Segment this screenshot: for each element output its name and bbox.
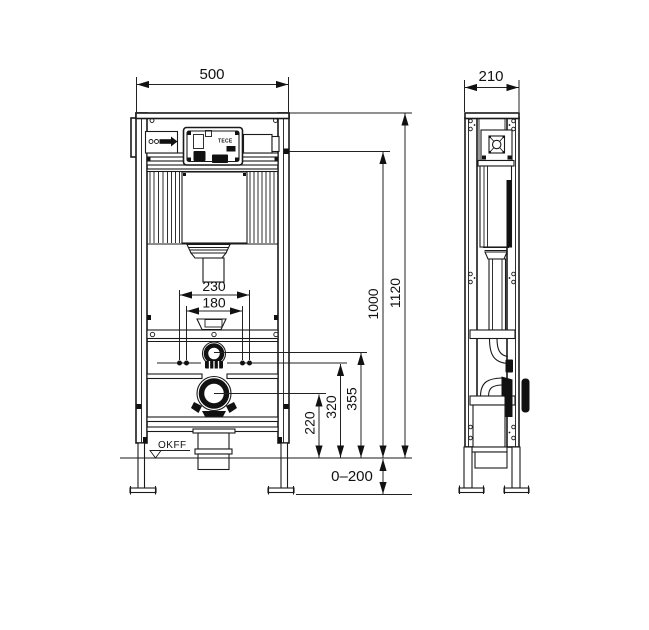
drain-pipe (193, 429, 235, 470)
mounting-stud (247, 361, 252, 366)
side-foot-plate-wall (504, 488, 529, 493)
dim-label-320: 320 (323, 395, 339, 419)
dim-depth-210: 210 (465, 68, 520, 112)
connector-unit (146, 132, 178, 154)
dim-label-500: 500 (199, 66, 224, 83)
side-flush-pipe (489, 259, 506, 330)
access-panel (182, 172, 247, 243)
cistern-ribs-left (150, 172, 180, 243)
wc-frame-technical-drawing: TECE (0, 0, 649, 630)
floor-reference: OKFF (120, 440, 412, 458)
mounting-stud (240, 361, 245, 366)
dim-label-230: 230 (202, 278, 226, 294)
side-view (459, 113, 530, 494)
dim-foot-range: 0–200 (296, 459, 412, 495)
flush-valve-shadow (507, 180, 512, 247)
frame-leg-right (268, 443, 294, 495)
technical-drawing-page: TECE (0, 0, 649, 630)
top-plate (136, 113, 289, 119)
dim-width-500: 500 (137, 66, 289, 112)
dim-height-220: 220 (302, 395, 319, 458)
dim-height-1000: 1000 (365, 152, 383, 458)
mounting-stud (177, 361, 182, 366)
dim-height-355: 355 (344, 353, 361, 458)
side-flush-unit (478, 130, 514, 166)
dim-label-180: 180 (202, 295, 226, 311)
drain-assembly (191, 377, 237, 419)
side-drain-pipe (472, 405, 507, 468)
side-foot-plate-front (459, 488, 484, 493)
wall-bracket (522, 379, 530, 413)
dim-label-210: 210 (478, 68, 503, 85)
tece-inspection-box: TECE (184, 128, 243, 166)
cistern-ribs-right (250, 172, 274, 243)
side-top-plate (465, 113, 519, 119)
side-leg-wall (504, 447, 529, 494)
side-middle-rail (470, 330, 515, 339)
brand-label: TECE (218, 139, 233, 145)
foot-plate-right (268, 488, 294, 493)
okff-level-marker-icon (150, 451, 161, 459)
middle-cross-rail (147, 330, 278, 342)
cistern-outlet-funnel (187, 245, 230, 283)
mounting-stud (184, 361, 189, 366)
okff-label: OKFF (158, 440, 187, 451)
flow-arrow-icon (160, 139, 172, 144)
foot-plate-left (130, 488, 156, 493)
dim-label-1120: 1120 (387, 278, 403, 308)
fill-valve-housing (244, 135, 280, 154)
dim-label-1000: 1000 (365, 288, 381, 319)
cistern-lid-joint (478, 161, 514, 167)
dim-height-320: 320 (323, 364, 340, 458)
dim-height-1120: 1120 (387, 114, 405, 458)
mounting-studs (157, 361, 347, 366)
cistern (147, 169, 278, 282)
dim-label-355: 355 (344, 387, 360, 411)
flush-bend-housing (203, 342, 226, 369)
dim-label-0-200: 0–200 (331, 468, 373, 485)
front-view: TECE (130, 113, 347, 495)
dim-label-220: 220 (302, 411, 318, 435)
flush-pipe-entry (197, 319, 226, 330)
